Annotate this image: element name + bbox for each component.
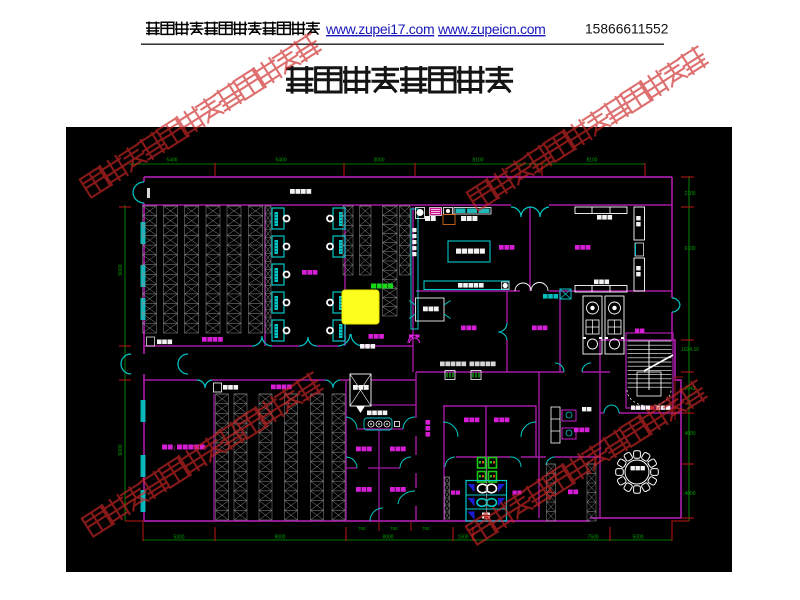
svg-text:9000: 9000 <box>118 264 124 275</box>
svg-text:7500: 7500 <box>587 535 598 541</box>
svg-text:6100: 6100 <box>684 246 695 252</box>
svg-text:15866611552: 15866611552 <box>585 22 668 37</box>
svg-text:(: ( <box>174 446 176 452</box>
svg-text:9000: 9000 <box>118 444 124 455</box>
svg-text:4000: 4000 <box>684 431 695 437</box>
svg-text:8000: 8000 <box>382 535 393 541</box>
svg-text:1500: 1500 <box>457 535 468 541</box>
svg-text:5400: 5400 <box>166 158 177 164</box>
svg-text:9000: 9000 <box>274 535 285 541</box>
svg-text:5300: 5300 <box>173 535 184 541</box>
svg-text:2100: 2100 <box>684 191 695 197</box>
svg-text:4000: 4000 <box>684 491 695 497</box>
svg-text:8100: 8100 <box>472 158 483 164</box>
svg-text:www.zupeicn.com: www.zupeicn.com <box>437 21 546 37</box>
svg-text:5400: 5400 <box>275 158 286 164</box>
svg-text:www.zupei17.com: www.zupei17.com <box>325 21 434 37</box>
svg-text:750: 750 <box>390 526 398 531</box>
svg-text:3000: 3000 <box>373 158 384 164</box>
svg-text:5000: 5000 <box>632 535 643 541</box>
svg-text:750: 750 <box>422 526 430 531</box>
svg-text:750: 750 <box>358 526 366 531</box>
svg-text:1024.16: 1024.16 <box>681 347 699 353</box>
svg-text:8100: 8100 <box>586 158 597 164</box>
